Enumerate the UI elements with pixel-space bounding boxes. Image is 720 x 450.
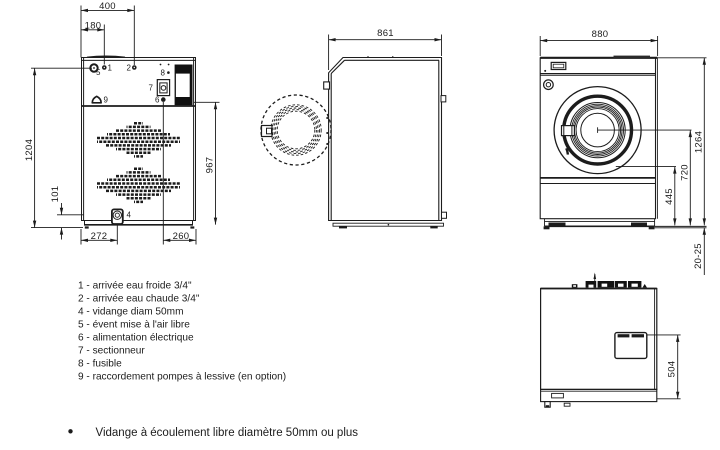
svg-text:260: 260: [173, 231, 190, 242]
svg-text:1: 1: [108, 64, 113, 73]
svg-text:6 - alimentation électrique: 6 - alimentation électrique: [78, 333, 194, 344]
svg-text:880: 880: [592, 29, 609, 40]
svg-text:400: 400: [99, 1, 116, 12]
svg-text:967: 967: [204, 157, 215, 174]
svg-text:9 - raccordement pompes à less: 9 - raccordement pompes à lessive (en op…: [78, 372, 286, 383]
svg-text:9: 9: [104, 96, 109, 105]
svg-text:1204: 1204: [24, 139, 35, 161]
svg-text:7 - sectionneur: 7 - sectionneur: [78, 346, 145, 357]
svg-text:180: 180: [85, 20, 102, 31]
svg-text:720: 720: [680, 164, 691, 181]
svg-text:504: 504: [667, 361, 678, 378]
svg-text:2: 2: [127, 64, 132, 73]
svg-text:272: 272: [91, 231, 108, 242]
svg-text:1 - arrivée eau froide 3/4": 1 - arrivée eau froide 3/4": [78, 281, 192, 292]
svg-text:7: 7: [149, 84, 154, 93]
svg-text:5: 5: [96, 68, 101, 77]
svg-text:8 - fusible: 8 - fusible: [78, 359, 122, 370]
svg-text:445: 445: [664, 188, 675, 205]
svg-text:861: 861: [377, 28, 394, 39]
svg-text:1264: 1264: [694, 131, 705, 153]
svg-text:20-25: 20-25: [693, 243, 704, 269]
svg-text:Vidange à écoulement libre dia: Vidange à écoulement libre diamètre 50mm…: [96, 427, 359, 439]
svg-text:5 - évent mise à l'air libre: 5 - évent mise à l'air libre: [78, 320, 190, 331]
svg-text:101: 101: [50, 186, 61, 203]
svg-text:4: 4: [127, 211, 132, 220]
svg-text:8: 8: [161, 69, 166, 78]
svg-text:2 - arrivée eau chaude 3/4": 2 - arrivée eau chaude 3/4": [78, 294, 200, 305]
svg-text:6: 6: [155, 96, 160, 105]
svg-text:4 - vidange diam 50mm: 4 - vidange diam 50mm: [78, 307, 183, 318]
